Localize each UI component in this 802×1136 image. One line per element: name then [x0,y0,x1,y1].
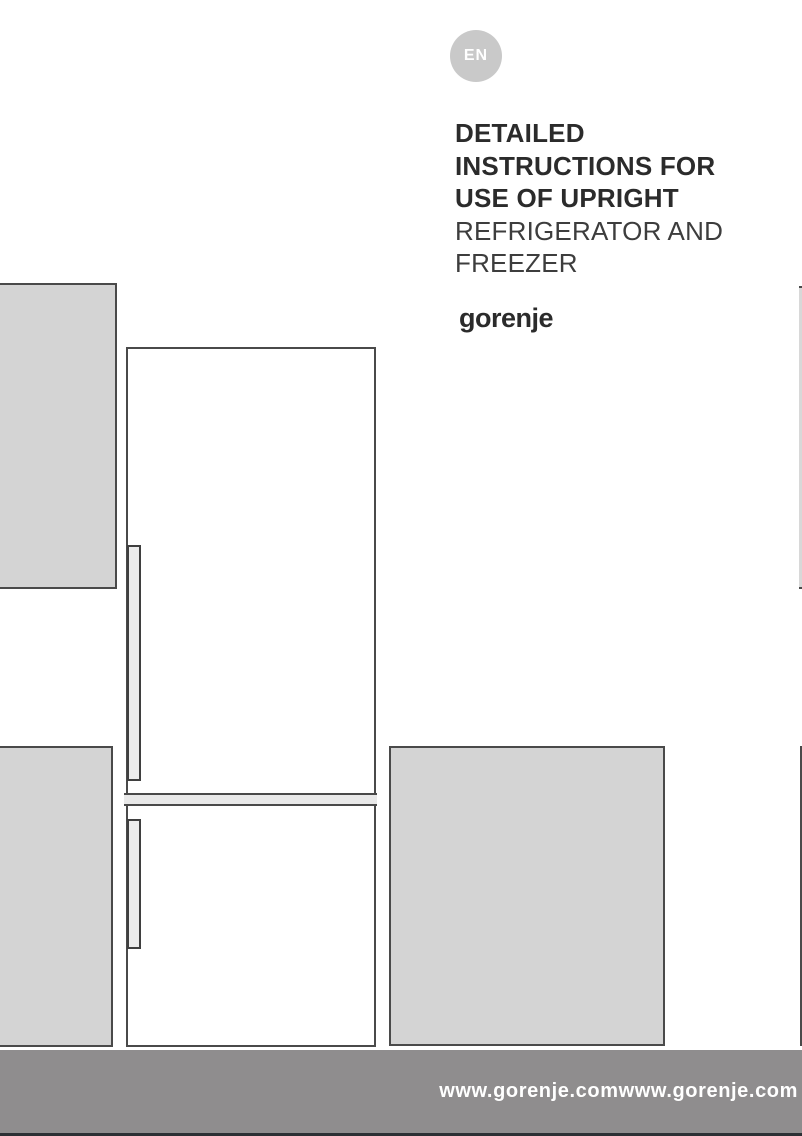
title-line-3: USE OF UPRIGHT [455,182,795,215]
cabinet-panel-top-left [0,283,117,589]
subtitle-line-1: REFRIGERATOR AND [455,215,795,248]
fridge-upper-door-handle [127,545,141,781]
language-badge: EN [450,30,502,82]
brand-logo: gorenje [459,303,553,334]
manual-cover-page: EN DETAILED INSTRUCTIONS FOR USE OF UPRI… [0,0,802,1136]
fridge-lower-door-handle [127,819,141,949]
title-line-1: DETAILED [455,117,795,150]
subtitle-line-2: FREEZER [455,247,795,280]
cabinet-panel-right [389,746,665,1046]
footer-website-text: www.gorenje.comwww.gorenje.com [439,1080,798,1103]
title-line-2: INSTRUCTIONS FOR [455,150,795,183]
fridge-outline [126,347,376,1047]
fridge-door-divider [124,793,377,806]
cabinet-panel-bottom-left [0,746,113,1047]
language-badge-label: EN [464,47,488,65]
page-title: DETAILED INSTRUCTIONS FOR USE OF UPRIGHT… [455,117,795,280]
footer-bar: www.gorenje.comwww.gorenje.com [0,1050,802,1133]
